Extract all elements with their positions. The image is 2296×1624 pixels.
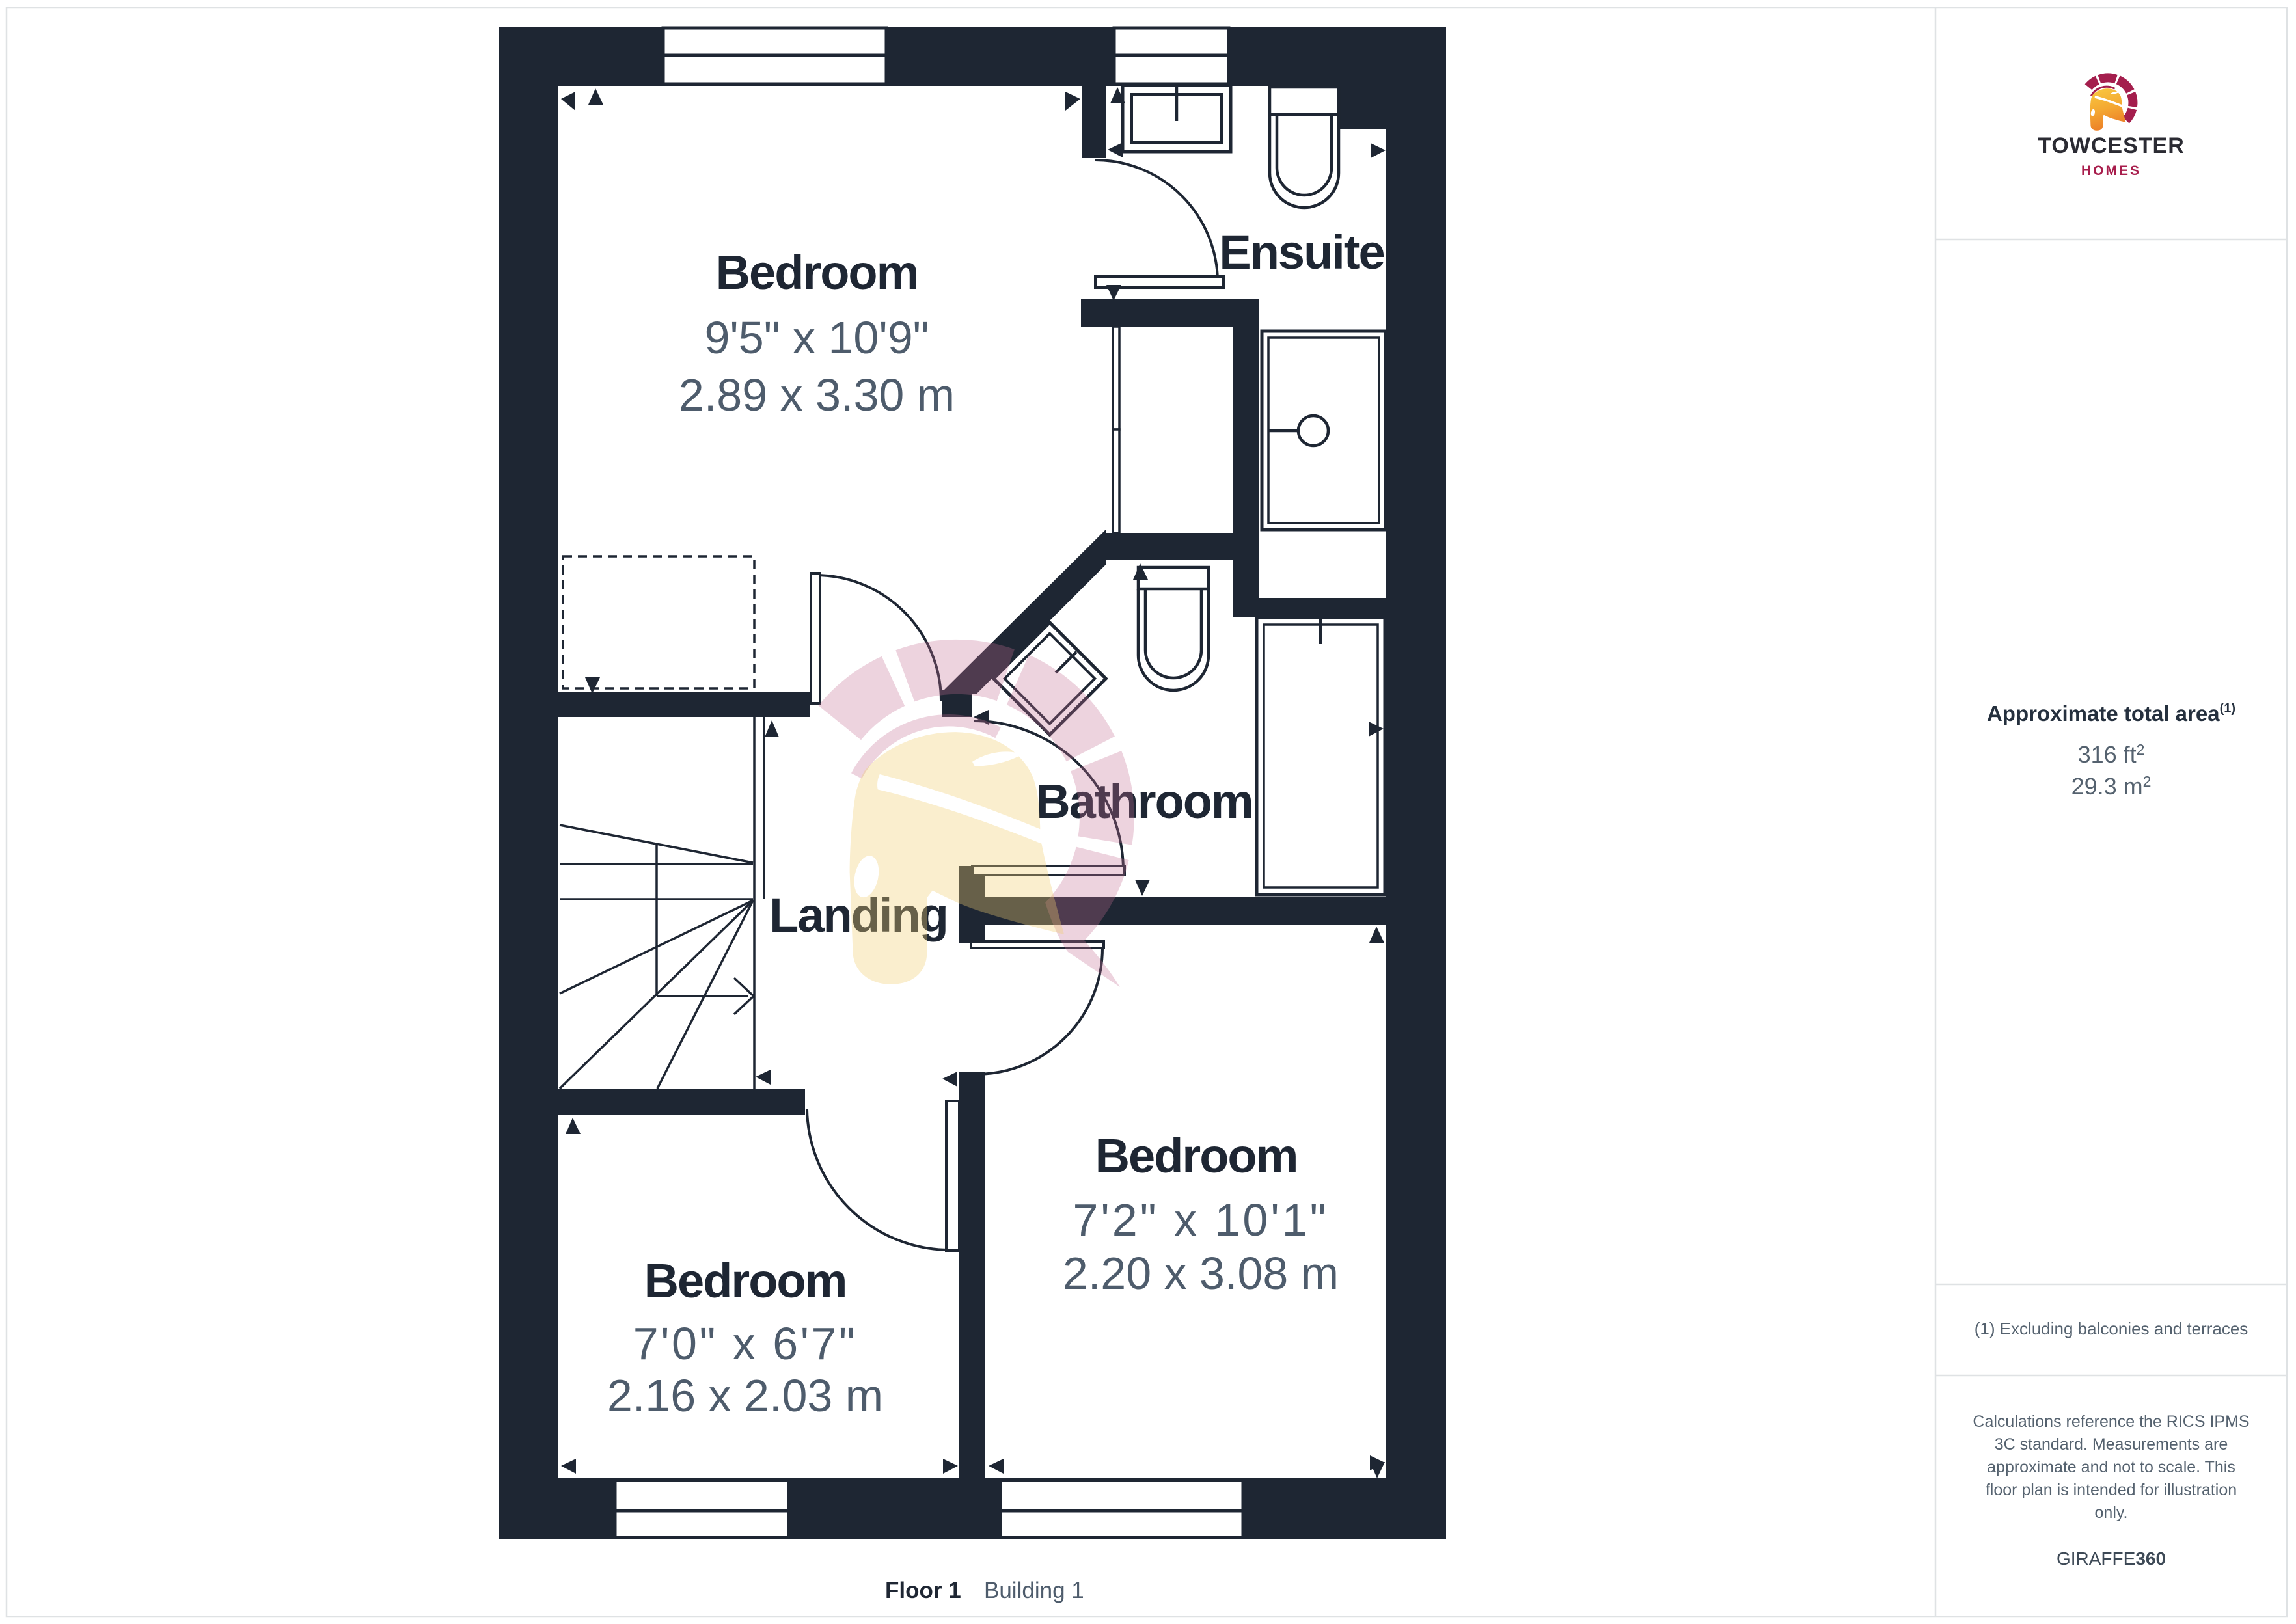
svg-text:7'0" x 6'7": 7'0" x 6'7" (633, 1318, 858, 1369)
svg-text:3C standard. Measurements are: 3C standard. Measurements are (1995, 1435, 2228, 1454)
svg-text:316 ft2: 316 ft2 (2078, 741, 2145, 768)
svg-text:TOWCESTER: TOWCESTER (2038, 133, 2185, 158)
svg-text:approximate and not to scale.: approximate and not to scale. This (1987, 1458, 2235, 1476)
svg-text:29.3 m2: 29.3 m2 (2071, 773, 2152, 800)
svg-text:7'2" x 10'1": 7'2" x 10'1" (1073, 1195, 1329, 1245)
svg-text:Bedroom: Bedroom (644, 1254, 847, 1308)
svg-text:HOMES: HOMES (2081, 163, 2141, 178)
svg-text:Ensuite: Ensuite (1219, 225, 1384, 279)
svg-text:only.: only. (2095, 1504, 2128, 1522)
svg-text:GIRAFFE360: GIRAFFE360 (2057, 1549, 2166, 1569)
svg-text:2.16 x 2.03 m: 2.16 x 2.03 m (607, 1370, 883, 1421)
svg-text:Building 1: Building 1 (984, 1578, 1084, 1603)
svg-text:9'5" x 10'9": 9'5" x 10'9" (705, 312, 929, 363)
svg-text:2.89 x 3.30 m: 2.89 x 3.30 m (679, 370, 955, 420)
svg-text:(1) Excluding balconies and te: (1) Excluding balconies and terraces (1975, 1319, 2248, 1338)
svg-text:Calculations reference the RIC: Calculations reference the RICS IPMS (1973, 1413, 2249, 1431)
svg-text:floor plan is intended for ill: floor plan is intended for illustration (1986, 1481, 2237, 1499)
svg-text:Bathroom: Bathroom (1035, 774, 1252, 828)
svg-text:Bedroom: Bedroom (1095, 1129, 1298, 1183)
svg-text:Floor 1: Floor 1 (885, 1578, 961, 1603)
svg-text:Bedroom: Bedroom (716, 245, 918, 299)
svg-text:Approximate total area(1): Approximate total area(1) (1987, 701, 2235, 725)
svg-text:2.20 x 3.08 m: 2.20 x 3.08 m (1063, 1248, 1339, 1299)
